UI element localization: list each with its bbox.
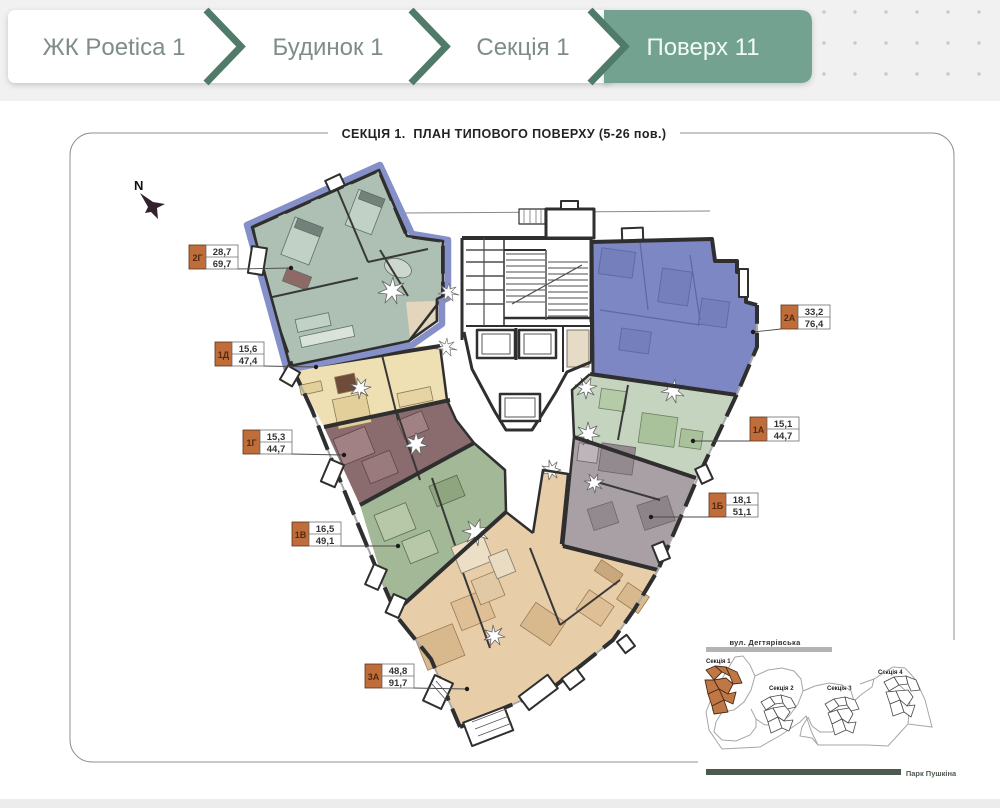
svg-text:Будинок 1: Будинок 1 [273, 34, 384, 61]
svg-text:33,2: 33,2 [805, 307, 824, 318]
svg-text:28,7: 28,7 [213, 247, 232, 258]
svg-text:2А: 2А [784, 313, 796, 323]
svg-text:69,7: 69,7 [213, 259, 232, 270]
svg-text:ЖК Poetica 1: ЖК Poetica 1 [43, 34, 186, 61]
svg-text:СЕКЦІЯ 1. ПЛАН ТИПОВОГО ПОВЕР: СЕКЦІЯ 1. ПЛАН ТИПОВОГО ПОВЕРХУ (5-26 по… [342, 127, 667, 141]
svg-text:1А: 1А [753, 425, 765, 435]
svg-text:48,8: 48,8 [389, 666, 408, 677]
svg-text:1Г: 1Г [246, 438, 256, 448]
svg-text:15,1: 15,1 [774, 419, 793, 430]
svg-text:51,1: 51,1 [733, 507, 752, 518]
svg-text:18,1: 18,1 [733, 495, 752, 506]
svg-text:76,4: 76,4 [805, 319, 824, 330]
svg-text:44,7: 44,7 [774, 431, 793, 442]
svg-text:16,5: 16,5 [316, 524, 335, 535]
svg-text:47,4: 47,4 [239, 356, 258, 367]
svg-text:15,3: 15,3 [267, 432, 286, 443]
svg-text:49,1: 49,1 [316, 536, 335, 547]
svg-text:Парк Пушкіна: Парк Пушкіна [906, 769, 957, 778]
svg-text:15,6: 15,6 [239, 344, 258, 355]
svg-text:вул. Дегтярівська: вул. Дегтярівська [729, 638, 801, 647]
svg-text:N: N [134, 178, 143, 193]
svg-text:3А: 3А [368, 672, 380, 682]
svg-text:Секція 4: Секція 4 [878, 670, 903, 676]
svg-text:Секція 2: Секція 2 [769, 686, 794, 692]
svg-text:Секція 1: Секція 1 [706, 659, 731, 665]
svg-text:44,7: 44,7 [267, 444, 286, 455]
svg-text:Поверх 11: Поверх 11 [646, 34, 759, 61]
svg-text:1Б: 1Б [712, 501, 724, 511]
svg-text:Секція 1: Секція 1 [476, 34, 569, 61]
svg-text:91,7: 91,7 [389, 678, 408, 689]
svg-text:1В: 1В [295, 530, 307, 540]
svg-text:1Д: 1Д [218, 350, 230, 360]
svg-text:2Г: 2Г [192, 253, 202, 263]
